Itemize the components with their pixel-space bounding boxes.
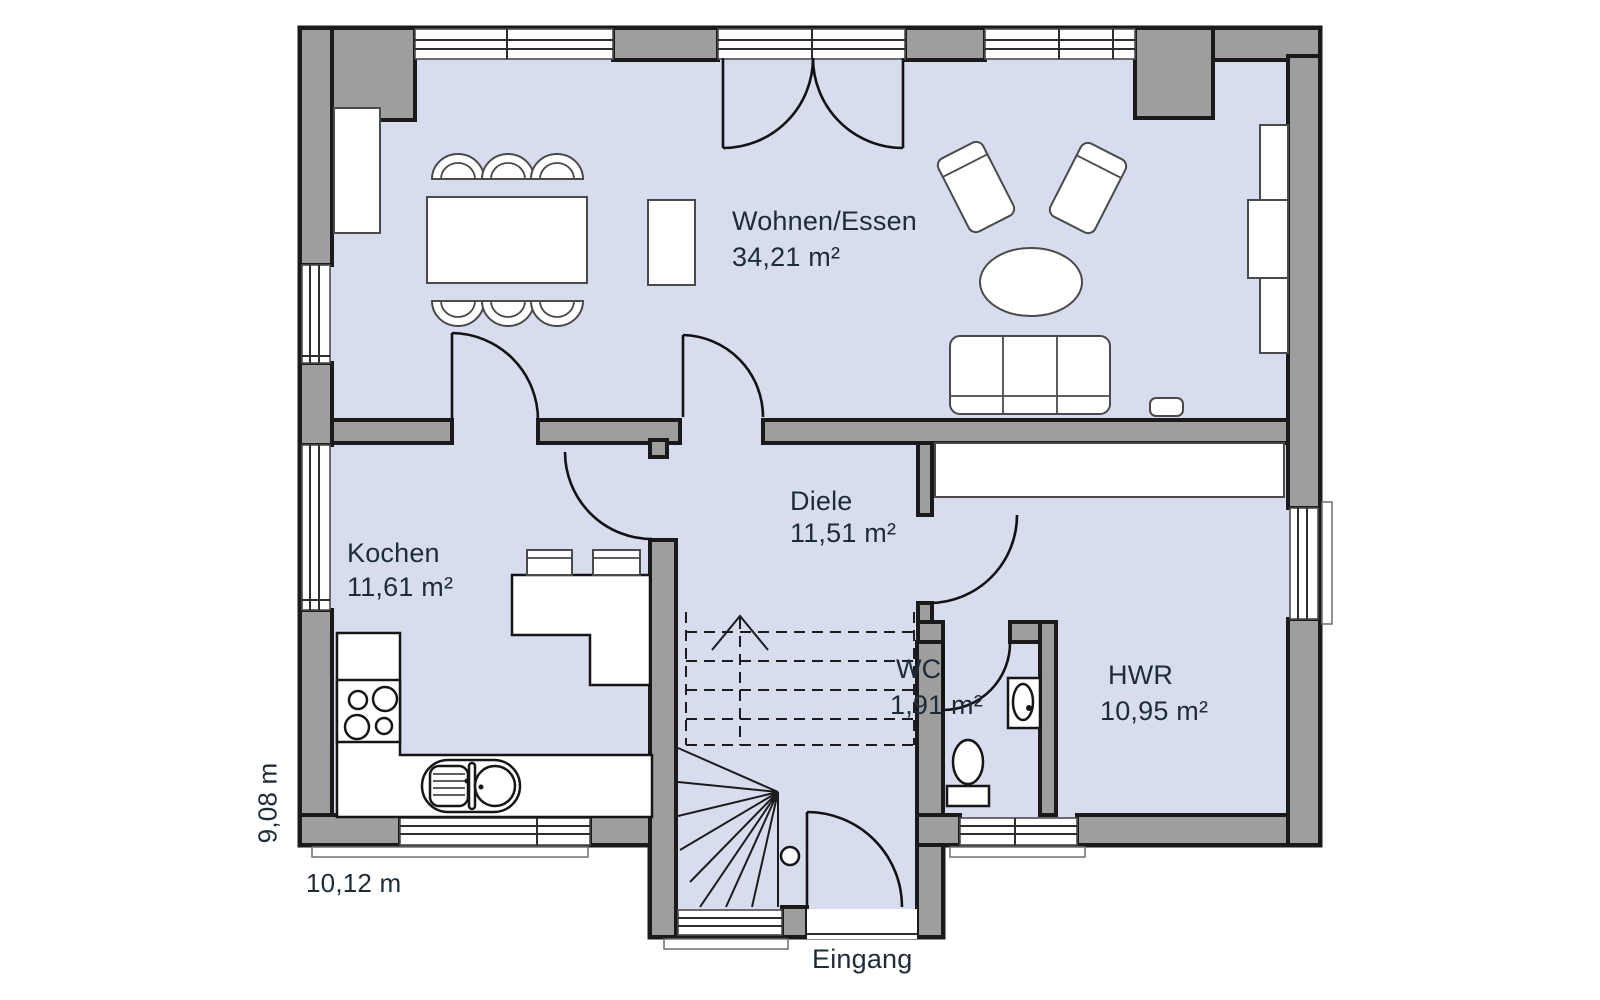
built-in-closet bbox=[935, 443, 1284, 497]
room-area-wc: 1,91 m² bbox=[890, 690, 983, 721]
room-area-wohnen-essen: 34,21 m² bbox=[732, 242, 840, 273]
room-area-diele: 11,51 m² bbox=[790, 518, 896, 549]
wall-shelf bbox=[1248, 200, 1288, 278]
window-left-dining bbox=[302, 265, 330, 363]
wall-shelf bbox=[1260, 125, 1288, 200]
sideboard bbox=[334, 108, 380, 233]
dining-table bbox=[427, 197, 587, 283]
room-label-wohnen-essen: Wohnen/Essen bbox=[732, 206, 917, 237]
coffee-table bbox=[980, 248, 1082, 316]
media-console bbox=[1150, 398, 1183, 416]
window-right-hwr bbox=[1290, 502, 1332, 624]
bar-stool bbox=[593, 550, 640, 575]
window-top-right bbox=[985, 29, 1135, 59]
stair-newel bbox=[781, 847, 799, 865]
floor-plan-canvas: Wohnen/Essen 34,21 m² Kochen 11,61 m² Di… bbox=[0, 0, 1600, 1000]
wc-sink bbox=[1008, 678, 1040, 728]
wall-shelf bbox=[1260, 278, 1288, 353]
dimension-depth: 9,08 m bbox=[253, 763, 284, 844]
entrance-opening bbox=[807, 909, 917, 939]
room-area-kochen: 11,61 m² bbox=[347, 572, 453, 603]
window-left-kitchen bbox=[302, 445, 330, 610]
window-bottom-wc bbox=[950, 818, 1085, 857]
french-door-threshold bbox=[718, 29, 905, 59]
room-label-hwr: HWR bbox=[1108, 660, 1173, 691]
room-area-hwr: 10,95 m² bbox=[1100, 696, 1208, 727]
room-label-diele: Diele bbox=[790, 486, 853, 517]
stove bbox=[337, 680, 400, 742]
kitchen-sink bbox=[422, 760, 520, 812]
sofa bbox=[950, 336, 1110, 414]
window-vestibule bbox=[664, 910, 788, 949]
dimension-width: 10,12 m bbox=[306, 868, 401, 899]
bar-stool bbox=[527, 550, 572, 575]
entrance-label: Eingang bbox=[812, 944, 913, 975]
room-label-kochen: Kochen bbox=[347, 538, 440, 569]
room-label-wc: WC bbox=[896, 654, 941, 685]
window-top-left bbox=[415, 29, 613, 59]
cabinet bbox=[648, 200, 695, 285]
